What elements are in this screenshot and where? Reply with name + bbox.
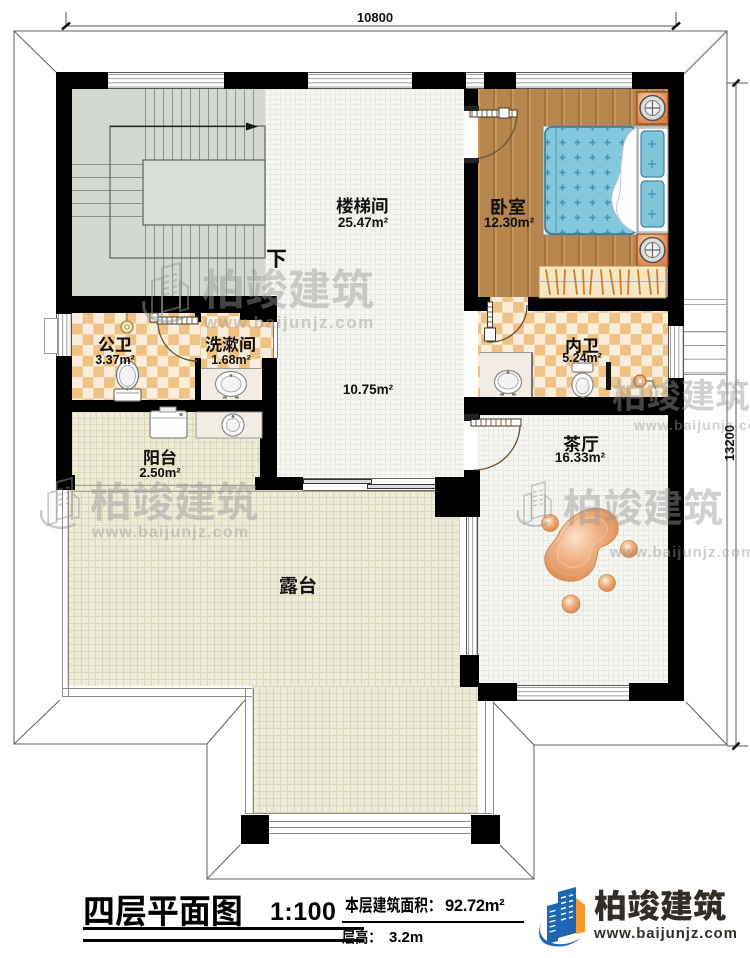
svg-text:www.baijunjz.com: www.baijunjz.com xyxy=(633,417,750,433)
svg-text:www.baijunjz.com: www.baijunjz.com xyxy=(91,524,249,541)
svg-text:www.baijunjz.com: www.baijunjz.com xyxy=(609,544,750,561)
svg-text:www.baijunjz.com: www.baijunjz.com xyxy=(203,313,375,332)
